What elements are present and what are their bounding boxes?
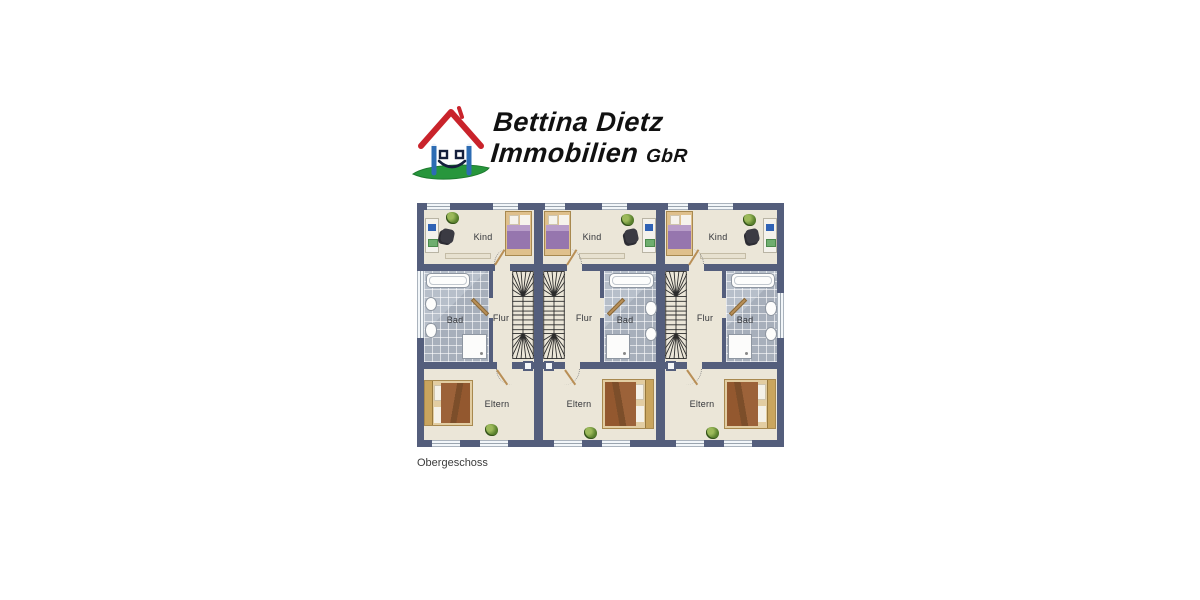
sink: [645, 327, 657, 341]
interior-wall: [582, 264, 689, 271]
interior-wall: [702, 362, 777, 369]
window: [480, 440, 508, 447]
room-label-kind: Kind: [583, 232, 602, 242]
sink: [425, 297, 437, 311]
shower: [462, 334, 487, 359]
company-logo: Bettina Dietz Immobilien GbR: [412, 103, 672, 188]
bath-wall: [489, 271, 493, 298]
logo-text: Bettina Dietz Immobilien GbR: [489, 107, 692, 173]
staircase: [665, 271, 687, 359]
smiling-house-icon: [412, 103, 492, 185]
headboard: [645, 380, 653, 428]
logo-company-name: Bettina Dietz: [492, 107, 692, 137]
window: [427, 203, 450, 210]
window: [708, 203, 733, 210]
window: [493, 203, 518, 210]
desk: [763, 218, 777, 253]
window: [417, 271, 424, 338]
party-wall: [534, 203, 543, 447]
bath-wall: [722, 318, 726, 362]
blanket: [605, 382, 636, 426]
shower: [606, 334, 630, 359]
logo-gbr-suffix: GbR: [645, 146, 688, 167]
staircase: [543, 271, 565, 359]
desk-chair: [624, 228, 640, 244]
bath-wall: [489, 318, 493, 362]
interior-wall: [510, 264, 567, 271]
room-label-bad: Bad: [447, 315, 464, 325]
room-label-eltern: Eltern: [567, 399, 592, 409]
desk-chair: [440, 228, 456, 244]
bath-wall: [722, 271, 726, 298]
room-label-flur: Flur: [576, 313, 592, 323]
sideboard: [445, 253, 491, 259]
desk: [425, 218, 439, 253]
sideboard: [579, 253, 625, 259]
stair-niche: [523, 361, 533, 371]
window: [432, 440, 460, 447]
toilet: [425, 323, 437, 338]
parents-bed: [602, 379, 654, 429]
bathtub: [426, 273, 470, 288]
interior-wall: [424, 362, 497, 369]
stair-niche: [544, 361, 554, 371]
headboard: [767, 380, 775, 428]
floor-plan: Kind Bad Flur Eltern Kind: [417, 203, 784, 447]
desk: [642, 218, 656, 253]
window: [668, 203, 688, 210]
blanket: [441, 383, 470, 423]
room-label-bad: Bad: [737, 315, 754, 325]
room-label-bad: Bad: [617, 315, 634, 325]
desk-chair: [745, 228, 761, 244]
room-label-eltern: Eltern: [690, 399, 715, 409]
interior-wall: [704, 264, 777, 271]
party-wall: [656, 203, 665, 447]
bath-wall: [600, 318, 604, 362]
window: [676, 440, 704, 447]
plant: [706, 427, 719, 439]
sideboard: [700, 253, 746, 259]
plant: [743, 214, 756, 226]
room-label-kind: Kind: [474, 232, 493, 242]
bathtub: [731, 273, 775, 288]
window: [777, 293, 784, 338]
interior-wall: [512, 362, 565, 369]
logo-business-type: Immobilien GbR: [489, 137, 689, 173]
bath-wall: [600, 271, 604, 298]
floor-caption: Obergeschoss: [417, 457, 488, 469]
window: [602, 203, 627, 210]
shower: [728, 334, 752, 359]
headboard: [425, 381, 433, 425]
plant: [584, 427, 597, 439]
room-label-eltern: Eltern: [485, 399, 510, 409]
window: [545, 203, 565, 210]
parents-bed: [424, 380, 473, 426]
room-label-flur: Flur: [697, 313, 713, 323]
plant: [621, 214, 634, 226]
interior-wall: [424, 264, 495, 271]
parents-bed: [724, 379, 776, 429]
blanket: [727, 382, 758, 426]
plant: [485, 424, 498, 436]
staircase: [512, 271, 534, 359]
room-label-kind: Kind: [709, 232, 728, 242]
toilet: [645, 301, 657, 316]
room-label-flur: Flur: [493, 313, 509, 323]
stair-niche: [666, 361, 676, 371]
toilet: [765, 301, 777, 316]
plant: [446, 212, 459, 224]
window: [602, 440, 630, 447]
window: [724, 440, 752, 447]
window: [554, 440, 582, 447]
bathtub: [609, 273, 654, 288]
sink: [765, 327, 777, 341]
